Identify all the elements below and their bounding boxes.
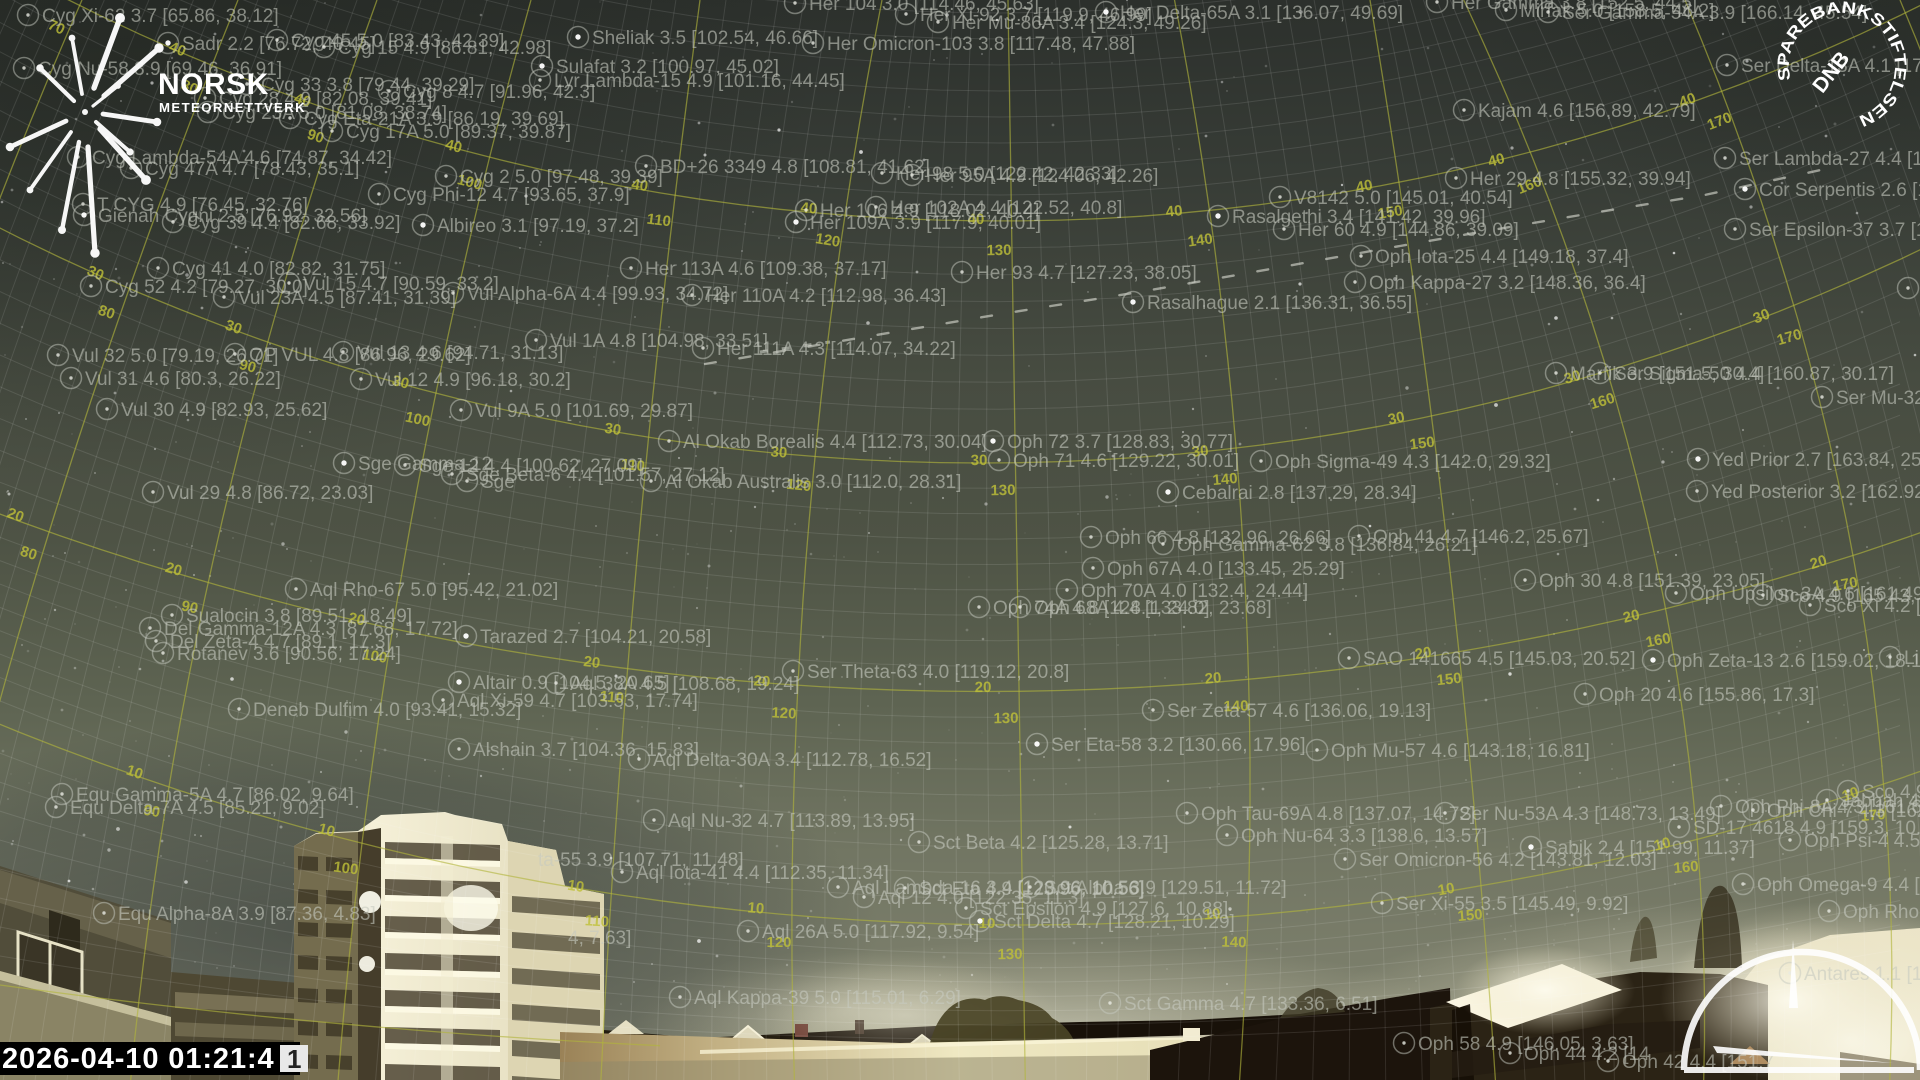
svg-text:Oph Omega-9 4.4 [162.18, 8.9]: Oph Omega-9 4.4 [162.18, 8.9]	[1757, 875, 1920, 896]
svg-text:Rasalhague 2.1 [136.31, 36.55]: Rasalhague 2.1 [136.31, 36.55]	[1147, 293, 1412, 314]
svg-text:150: 150	[1409, 434, 1436, 454]
svg-text:20: 20	[1204, 669, 1222, 687]
svg-text:10: 10	[566, 877, 585, 896]
svg-text:Cyg 47A 4.7 [78.43, 35.1]: Cyg 47A 4.7 [78.43, 35.1]	[145, 159, 359, 180]
svg-text:Oph Mu-57 4.6 [143.18, 16.81]: Oph Mu-57 4.6 [143.18, 16.81]	[1331, 741, 1590, 762]
svg-text:Her 111A 4.3 [114.07, 34.22]: Her 111A 4.3 [114.07, 34.22]	[717, 339, 956, 360]
svg-text:30: 30	[603, 420, 622, 439]
svg-text:Kajam 4.6 [156.89, 42.79]: Kajam 4.6 [156.89, 42.79]	[1478, 101, 1696, 122]
svg-text:METEORNETTVERK: METEORNETTVERK	[159, 100, 306, 115]
svg-text:130: 130	[993, 710, 1018, 727]
svg-text:Equ Delta-7A 4.5 [85.21, 9.02]: Equ Delta-7A 4.5 [85.21, 9.02]	[70, 798, 325, 819]
svg-text:Her 110A 4.2 [112.98, 36.43]: Her 110A 4.2 [112.98, 36.43]	[706, 286, 946, 307]
svg-text:Yed Prior 2.7 [163.84, 25.79]: Yed Prior 2.7 [163.84, 25.79]	[1712, 450, 1920, 471]
svg-text:Sct Gamma 4.7 [133.36, 6.51]: Sct Gamma 4.7 [133.36, 6.51]	[1124, 994, 1377, 1015]
svg-text:Oph Zeta-13 2.6 [159.02, 18.12: Oph Zeta-13 2.6 [159.02, 18.12]	[1667, 651, 1920, 672]
svg-text:4, 7.63]: 4, 7.63]	[568, 928, 631, 949]
svg-text:Equ Alpha-8A 3.9 [87.36, 4.83]: Equ Alpha-8A 3.9 [87.36, 4.83]	[118, 904, 376, 925]
svg-text:Sct Delta 4.7 [128.21, 10.29]: Sct Delta 4.7 [128.21, 10.29]	[994, 912, 1235, 933]
svg-text:Oph 20 4.6 [155.86, 17.3]: Oph 20 4.6 [155.86, 17.3]	[1599, 685, 1815, 706]
svg-text:Ser Xi-55 3.5 [145.49, 9.92]: Ser Xi-55 3.5 [145.49, 9.92]	[1396, 894, 1628, 915]
svg-text:Tarazed 2.7 [104.21, 20.58]: Tarazed 2.7 [104.21, 20.58]	[480, 627, 711, 648]
svg-text:150: 150	[1436, 670, 1463, 690]
svg-text:Sco Xi 4.2 [167.1, 20.1]: Sco Xi 4.2 [167.1, 20.1]	[1824, 596, 1920, 617]
svg-text:Vul Alpha-6A 4.4 [99.93, 34.72: Vul Alpha-6A 4.4 [99.93, 34.72]	[467, 284, 728, 305]
svg-text:Oph 72 3.7 [128.83, 30.77]: Oph 72 3.7 [128.83, 30.77]	[1007, 432, 1233, 453]
svg-text:30: 30	[1386, 408, 1406, 428]
svg-text:100: 100	[332, 859, 359, 879]
svg-text:2026-04-10 01:21:4: 2026-04-10 01:21:4	[2, 1043, 275, 1075]
svg-text:Vul 30 4.9 [82.93, 25.62]: Vul 30 4.9 [82.93, 25.62]	[121, 400, 327, 421]
svg-text:Sheliak 3.5 [102.54, 46.66]: Sheliak 3.5 [102.54, 46.66]	[592, 28, 818, 49]
svg-text:20: 20	[582, 653, 601, 672]
svg-text:130: 130	[990, 482, 1015, 499]
svg-text:Ser Mu-32 3.5 [170.2, 28.9]: Ser Mu-32 3.5 [170.2, 28.9]	[1836, 388, 1920, 409]
svg-text:Vul 32 5.0 [79.19, 26.71]: Vul 32 5.0 [79.19, 26.71]	[72, 346, 278, 367]
svg-text:Yed Posterior 3.2 [162.92, 24.: Yed Posterior 3.2 [162.92, 24.67]	[1711, 482, 1920, 503]
svg-text:Oph 67A 4.0 [133.45, 25.29]: Oph 67A 4.0 [133.45, 25.29]	[1107, 559, 1345, 580]
svg-text:Oph Psi-4 4.5 [163.82, 10.3]: Oph Psi-4 4.5 [163.82, 10.3]	[1804, 831, 1920, 852]
svg-text:Ser Eta-58 3.2 [130.66, 17.96]: Ser Eta-58 3.2 [130.66, 17.96]	[1051, 735, 1306, 756]
svg-text:1: 1	[287, 1044, 301, 1074]
svg-text:Oph Iota-25 4.4 [149.18, 37.4]: Oph Iota-25 4.4 [149.18, 37.4]	[1375, 247, 1629, 268]
svg-text:BD+26 3349 4.8 [108.81, 41.62]: BD+26 3349 4.8 [108.81, 41.62]	[660, 157, 930, 178]
svg-text:Deneb Dulfim 4.0 [93.41, 15.32: Deneb Dulfim 4.0 [93.41, 15.32]	[253, 700, 521, 721]
svg-text:Al Okab Australis 3.0 [112.0,: Al Okab Australis 3.0 [112.0, 28.31]	[665, 472, 961, 493]
svg-text:V8142 5.0 [145.01, 40.54]: V8142 5.0 [145.01, 40.54]	[1294, 188, 1513, 209]
svg-text:120: 120	[771, 704, 797, 722]
svg-text:130: 130	[986, 242, 1011, 259]
svg-text:Her 93 4.7 [127.23, 38.05]: Her 93 4.7 [127.23, 38.05]	[976, 263, 1197, 284]
svg-text:Oph Sigma-49 4.3 [142.0, 29.32: Oph Sigma-49 4.3 [142.0, 29.32]	[1275, 452, 1551, 473]
svg-text:SAO 141665 4.5 [145.03, 20.52]: SAO 141665 4.5 [145.03, 20.52]	[1363, 649, 1636, 670]
svg-text:Cyg Xi-62 3.7 [65.86, 38.12]: Cyg Xi-62 3.7 [65.86, 38.12]	[42, 6, 279, 27]
svg-text:Oph Nu-64 3.3 [138.6, 13.57]: Oph Nu-64 3.3 [138.6, 13.57]	[1241, 826, 1487, 847]
svg-text:Ser Epsilon-37 3.7 [169.51, 35: Ser Epsilon-37 3.7 [169.51, 35.0]	[1749, 220, 1920, 241]
svg-text:Her 113A 4.6 [109.38, 37.17]: Her 113A 4.6 [109.38, 37.17]	[645, 259, 887, 280]
svg-text:Aql Nu-32 4.7 [113.89, 13.95]: Aql Nu-32 4.7 [113.89, 13.95]	[668, 811, 915, 832]
svg-text:Aql Rho-67 5.0 [95.42, 21.02]: Aql Rho-67 5.0 [95.42, 21.02]	[310, 580, 558, 601]
svg-text:Vul 9A 5.0 [101.69, 29.87]: Vul 9A 5.0 [101.69, 29.87]	[475, 401, 693, 422]
svg-text:Vul 23A 4.5 [87.41, 31.39]: Vul 23A 4.5 [87.41, 31.39]	[238, 288, 456, 309]
svg-text:160: 160	[1673, 858, 1699, 877]
svg-text:Vul 12 4.9 [96.18, 30.2]: Vul 12 4.9 [96.18, 30.2]	[375, 370, 571, 391]
svg-text:Al Okab Borealis 4.4 [112.73,: Al Okab Borealis 4.4 [112.73, 30.04]	[683, 432, 987, 453]
svg-text:Aql Delta-30A 3.4 [112.78, 16.: Aql Delta-30A 3.4 [112.78, 16.52]	[653, 750, 932, 771]
svg-text:Rotanev 3.6 [90.56, 17.24]: Rotanev 3.6 [90.56, 17.24]	[177, 644, 401, 665]
svg-text:Ser Omicron-56 4.2 [143.81, 12: Ser Omicron-56 4.2 [143.81, 12.03]	[1359, 850, 1657, 871]
svg-text:40: 40	[1165, 202, 1183, 221]
svg-text:Ser Lambda-27 4.4 [170.55, 37.: Ser Lambda-27 4.4 [170.55, 37.5]	[1739, 149, 1920, 170]
svg-text:Aql 26A 5.0 [117.92, 9.54]: Aql 26A 5.0 [117.92, 9.54]	[762, 922, 979, 943]
svg-text:Cyg 39 4.4 [82.68, 33.92]: Cyg 39 4.4 [82.68, 33.92]	[187, 213, 400, 234]
svg-text:Oph 68A 4.4 [133.82, 23.68]: Oph 68A 4.4 [133.82, 23.68]	[1034, 598, 1272, 619]
svg-text:Sge: Sge	[481, 472, 515, 493]
svg-text:Lyr Lambda-15 4.9 [101.16, 44.: Lyr Lambda-15 4.9 [101.16, 44.45]	[554, 71, 845, 92]
svg-text:30: 30	[971, 452, 988, 469]
svg-text:Her 29 4.8 [155.32, 39.94]: Her 29 4.8 [155.32, 39.94]	[1470, 169, 1691, 190]
svg-text:Cyg 15 4.9 [86.81, 42.98]: Cyg 15 4.9 [86.81, 42.98]	[338, 38, 551, 59]
svg-text:140: 140	[1187, 230, 1214, 250]
svg-text:Vul 31 4.6 [80.3, 26.22]: Vul 31 4.6 [80.3, 26.22]	[85, 369, 281, 390]
svg-text:130: 130	[997, 946, 1022, 963]
svg-text:Ser Nu-53A 4.3 [148.73, 13.49]: Ser Nu-53A 4.3 [148.73, 13.49]	[1459, 804, 1721, 825]
svg-text:Albireo 3.1 [97.19, 37.2]: Albireo 3.1 [97.19, 37.2]	[437, 216, 639, 237]
svg-text:Oph Rho-5A 4.6 [165.0, 8.5]: Oph Rho-5A 4.6 [165.0, 8.5]	[1843, 902, 1920, 923]
svg-text:Her 109A 3.9 [117.9, 40.01]: Her 109A 3.9 [117.9, 40.01]	[810, 213, 1041, 234]
svg-text:Oph 41 4.7 [146.2, 25.67]: Oph 41 4.7 [146.2, 25.67]	[1373, 527, 1589, 548]
svg-text:Aql Kappa-39 5.0 [115.01, 6.29: Aql Kappa-39 5.0 [115.01, 6.29]	[694, 988, 961, 1009]
svg-text:Her Omicron-103 3.8 [117.48, 4: Her Omicron-103 3.8 [117.48, 47.88]	[827, 34, 1135, 55]
svg-text:Vul 29 4.8 [86.72, 23.03]: Vul 29 4.8 [86.72, 23.03]	[167, 483, 373, 504]
svg-text:NORSK: NORSK	[158, 68, 269, 101]
svg-text:Her 60 4.9 [144.86, 39.09]: Her 60 4.9 [144.86, 39.09]	[1298, 220, 1519, 241]
svg-text:Sct Beta 4.2 [125.28, 13.71]: Sct Beta 4.2 [125.28, 13.71]	[933, 833, 1169, 854]
svg-text:Cor Serpentis 2.6 [171.31, 36.: Cor Serpentis 2.6 [171.31, 36.2]	[1759, 180, 1920, 201]
svg-text:Ser Theta-63 4.0 [119.12, 20.8: Ser Theta-63 4.0 [119.12, 20.8]	[807, 662, 1069, 683]
svg-text:Her 95A 4.9 [124.06, 42.26]: Her 95A 4.9 [124.06, 42.26]	[926, 166, 1158, 187]
svg-text:Oph Kappa-27 3.2 [148.36, 36.4: Oph Kappa-27 3.2 [148.36, 36.4]	[1369, 273, 1646, 294]
svg-text:Cyg 17A 5.0 [89.37, 39.87]: Cyg 17A 5.0 [89.37, 39.87]	[346, 122, 571, 143]
svg-text:10: 10	[747, 899, 765, 917]
svg-text:QP VUL 4.8 [86.96, 29.62]: QP VUL 4.8 [86.96, 29.62]	[249, 345, 471, 366]
svg-text:Ser Sigma-50 4.4 [160.87, 30.1: Ser Sigma-50 4.4 [160.87, 30.17]	[1614, 364, 1894, 385]
svg-text:Cyg Phi-12 4.7 [93.65, 37.9]: Cyg Phi-12 4.7 [93.65, 37.9]	[393, 185, 630, 206]
svg-text:Sco 4.9 [1: Sco 4.9 [1	[1862, 782, 1920, 803]
svg-text:Oph 71 4.6 [129.22, 30.01]: Oph 71 4.6 [129.22, 30.01]	[1013, 451, 1239, 472]
svg-text:Cebalrai 2.8 [137.29, 28.34]: Cebalrai 2.8 [137.29, 28.34]	[1182, 483, 1417, 504]
svg-text:Her Delta-65A 3.1 [136.07, 49.: Her Delta-65A 3.1 [136.07, 49.69]	[1120, 3, 1403, 24]
svg-text:Ser Zeta-57 4.6 [136.06, 19.13: Ser Zeta-57 4.6 [136.06, 19.13]	[1167, 701, 1431, 722]
svg-text:Lib 48 5.0 [17: Lib 48 5.0 [17	[1904, 648, 1920, 669]
svg-text:110: 110	[646, 211, 672, 231]
svg-text:Aql Iota-41 4.4 [112.35, 11.34: Aql Iota-41 4.4 [112.35, 11.34]	[636, 863, 889, 884]
svg-text:140: 140	[1221, 934, 1247, 952]
